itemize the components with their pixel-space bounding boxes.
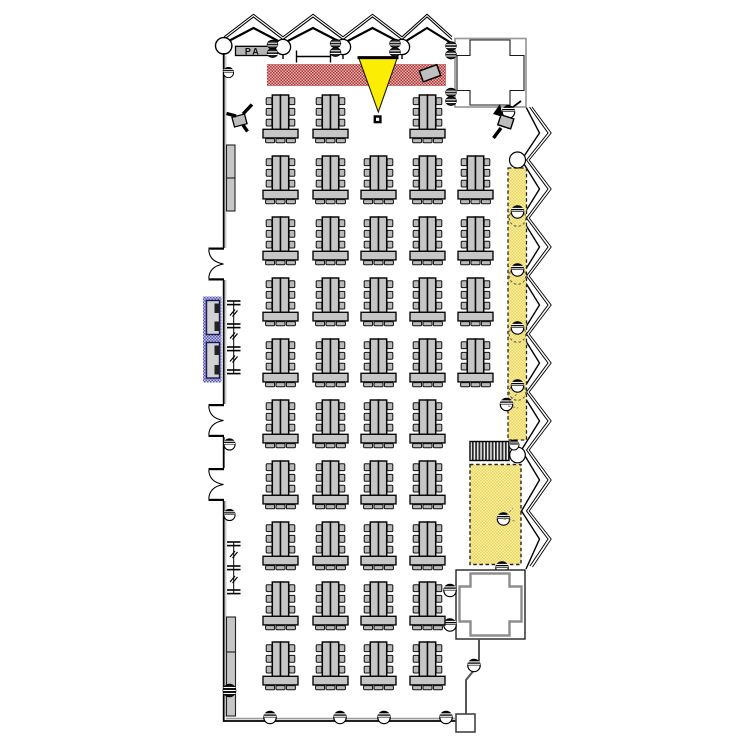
svg-text:PA: PA bbox=[245, 46, 261, 56]
